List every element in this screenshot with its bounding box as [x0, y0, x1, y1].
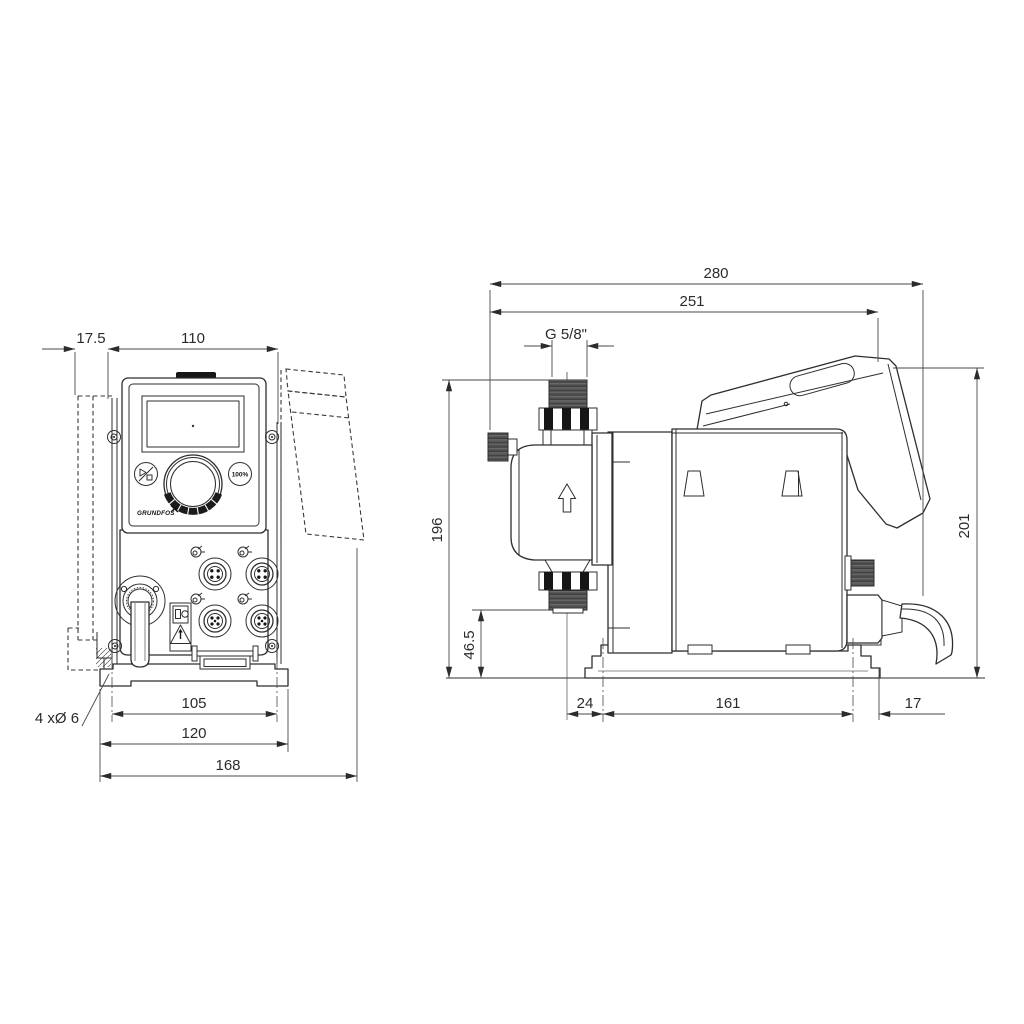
pump-dimensional-drawing: 100% GRUNDFOS — [0, 0, 1024, 1024]
outlet-thread — [549, 590, 587, 610]
hundred-percent-label: 100% — [232, 472, 249, 479]
housing-foot — [688, 645, 712, 654]
dim-connection-thread: G 5/8" — [524, 326, 614, 377]
warning-label — [170, 603, 191, 651]
display — [142, 396, 244, 452]
dim-base-hole-spacing: 161 — [603, 695, 853, 714]
svg-text:24: 24 — [577, 695, 594, 712]
svg-text:201: 201 — [956, 513, 973, 538]
base-plate-front — [100, 664, 288, 686]
inlet-thread — [549, 380, 587, 408]
svg-text:280: 280 — [703, 265, 728, 282]
dim-base-front-offset: 24 — [567, 695, 603, 714]
control-cube-dashed-outline — [281, 369, 364, 545]
svg-text:4 xØ 6: 4 xØ 6 — [35, 710, 79, 727]
svg-text:168: 168 — [215, 757, 240, 774]
power-cable — [131, 602, 149, 667]
svg-text:GRUNDFOS: GRUNDFOS — [137, 510, 175, 517]
svg-text:120: 120 — [181, 725, 206, 742]
head-flange — [592, 433, 612, 565]
screw — [108, 431, 121, 444]
svg-text:17.5: 17.5 — [76, 330, 105, 347]
outlet-nut — [539, 572, 597, 590]
vent-knob — [488, 433, 508, 461]
svg-text:110: 110 — [181, 330, 205, 347]
dim-plate-thickness: 17.5 — [42, 330, 108, 399]
front-view: 100% GRUNDFOS — [35, 330, 364, 782]
dimensional-drawing-page: 100% GRUNDFOS — [0, 0, 1024, 1024]
dim-hole-note: 4 xØ 6 — [35, 674, 109, 727]
svg-text:161: 161 — [715, 695, 740, 712]
side-view: 280 251 G 5/8" 196 46.5 201 — [429, 265, 985, 722]
svg-text:17: 17 — [905, 695, 922, 712]
connector-socket — [246, 605, 278, 637]
mounting-hook — [684, 471, 704, 496]
inlet-nut — [539, 408, 597, 430]
svg-text:46.5: 46.5 — [461, 630, 478, 659]
mounting-plate-outline — [68, 396, 113, 676]
dim-outlet-height: 46.5 — [461, 610, 549, 678]
svg-text:G 5/8": G 5/8" — [545, 326, 587, 343]
svg-text:105: 105 — [181, 695, 206, 712]
connector-socket — [199, 605, 231, 637]
housing-foot — [786, 645, 810, 654]
svg-text:251: 251 — [679, 293, 704, 310]
dim-hole-spacing: 105 — [112, 695, 277, 714]
motor-housing — [608, 429, 847, 654]
svg-text:196: 196 — [429, 517, 446, 542]
